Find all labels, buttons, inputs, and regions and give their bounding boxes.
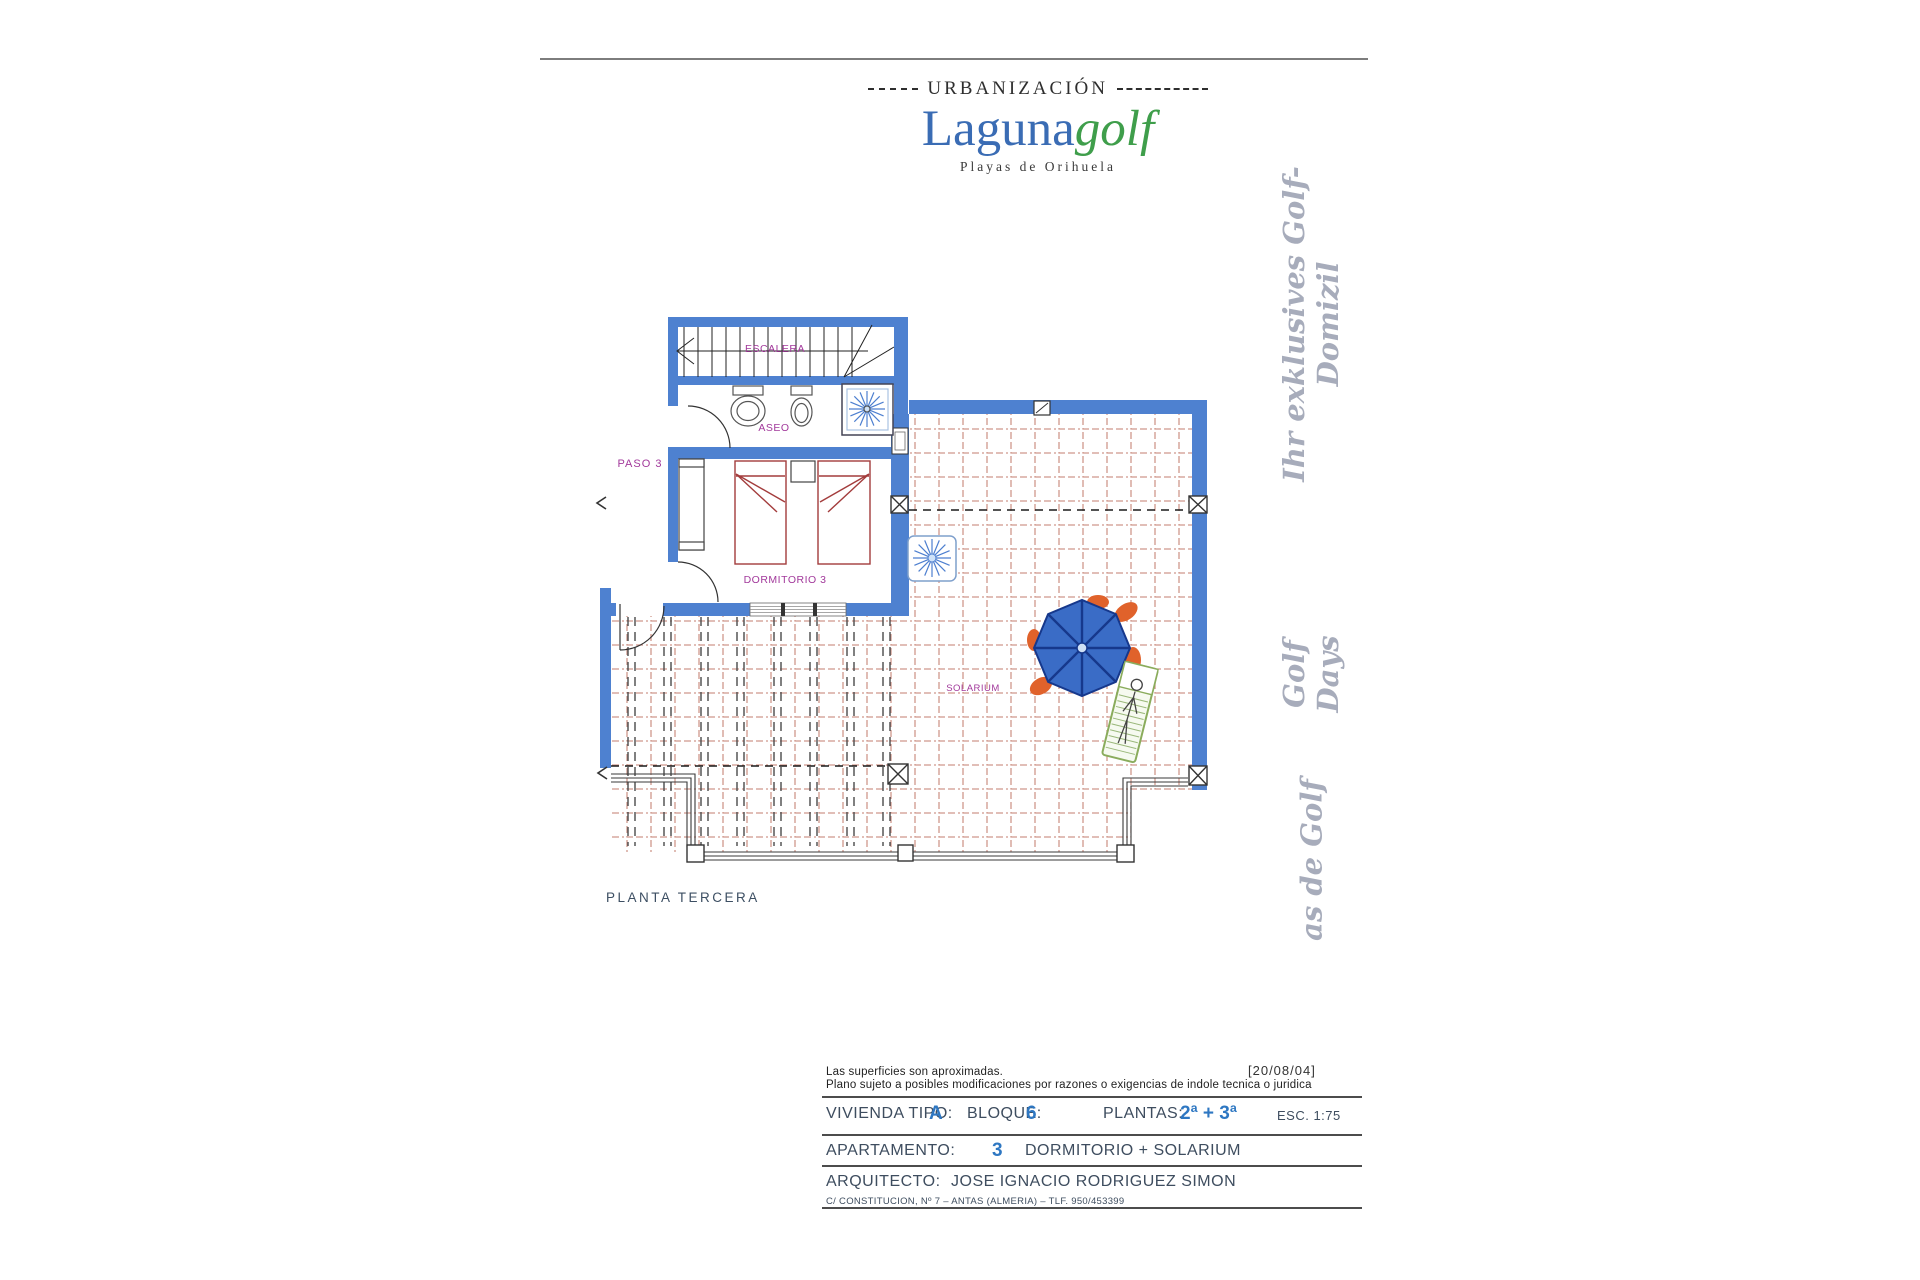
label-aseo: ASEO: [758, 422, 789, 434]
side-text-casas: as de Golf: [1295, 778, 1329, 943]
floor-plan-svg: ESCALERA ASEO PASO 3 DORMITORIO 3 SOLARI…: [560, 300, 1260, 920]
titleblock-rule-3: [822, 1165, 1362, 1167]
pillar-x-icon: [1189, 766, 1207, 785]
brand-logo: Lagunagolf: [868, 102, 1208, 156]
arquitecto-value: JOSE IGNACIO RODRIGUEZ SIMON: [951, 1173, 1236, 1190]
plan-sheet: URBANIZACIÓN Lagunagolf Playas de Orihue…: [0, 0, 1920, 1280]
railing-post: [1117, 845, 1134, 862]
side-text-domizil: Ihr exklusives Golf-Domizil: [1277, 109, 1345, 539]
header-dash-left: [868, 88, 918, 90]
plantas-label: PLANTAS:: [1103, 1105, 1183, 1123]
apartamento-value: 3: [992, 1140, 1003, 1162]
shower-icon: [842, 384, 893, 435]
date-stamp: [20/08/04]: [1248, 1063, 1316, 1078]
pillar-x-icon: [888, 764, 908, 784]
apartamento-label: APARTAMENTO:: [826, 1142, 955, 1160]
label-escalera: ESCALERA: [745, 343, 805, 355]
urbanizacion-row: URBANIZACIÓN: [868, 78, 1208, 100]
wardrobe: [679, 459, 704, 550]
brand-golf: golf: [1075, 101, 1154, 157]
pillar-x-icon: [891, 496, 908, 513]
nightstand: [791, 461, 815, 482]
arquitecto-row: ARQUITECTO: JOSE IGNACIO RODRIGUEZ SIMON: [826, 1173, 1236, 1191]
label-paso: PASO 3: [618, 458, 663, 470]
side-text-golf-days: Golf Days: [1277, 599, 1345, 749]
bathroom-fixtures: [731, 384, 893, 435]
titleblock-rule-4: [822, 1207, 1362, 1209]
bed-1: [735, 461, 786, 564]
label-dormitorio: DORMITORIO 3: [744, 574, 827, 586]
sheet-top-rule: [540, 58, 1368, 60]
sink-icon: [731, 386, 765, 426]
toilet-icon: [791, 386, 812, 426]
disclaimer-line-1: Las superficies son aproximadas.: [826, 1066, 1003, 1078]
plantas-value: 2ª + 3ª: [1180, 1103, 1237, 1125]
label-solarium: SOLARIUM: [946, 683, 1000, 694]
label-planta-tercera: PLANTA TERCERA: [606, 890, 760, 905]
header-dash-right: [1117, 88, 1208, 90]
header: URBANIZACIÓN Lagunagolf Playas de Orihue…: [868, 78, 1208, 175]
escala-label: ESC. 1:75: [1277, 1108, 1341, 1123]
titleblock-rule-1: [822, 1096, 1362, 1098]
railing-post: [687, 845, 704, 862]
urbanizacion-label: URBANIZACIÓN: [927, 78, 1108, 100]
apartamento-desc: DORMITORIO + SOLARIUM: [1025, 1142, 1241, 1160]
arquitecto-label: ARQUITECTO:: [826, 1173, 941, 1190]
bed-2: [818, 461, 870, 564]
vivienda-tipo-value: A: [929, 1103, 943, 1125]
arquitecto-address: C/ CONSTITUCION, Nº 7 – ANTAS (ALMERIA) …: [826, 1196, 1124, 1207]
disclaimer-line-2: Plano sujeto a posibles modificaciones p…: [826, 1079, 1312, 1091]
terrace-light-symbol: [908, 536, 956, 581]
brand-laguna: Laguna: [922, 101, 1075, 157]
titleblock-rule-2: [822, 1134, 1362, 1136]
railing-post: [898, 845, 913, 861]
bedroom-furniture: [679, 459, 870, 564]
bloque-value: 6: [1026, 1103, 1037, 1125]
pillar-x-icon: [1189, 496, 1207, 513]
brand-subtitle: Playas de Orihuela: [868, 159, 1208, 175]
